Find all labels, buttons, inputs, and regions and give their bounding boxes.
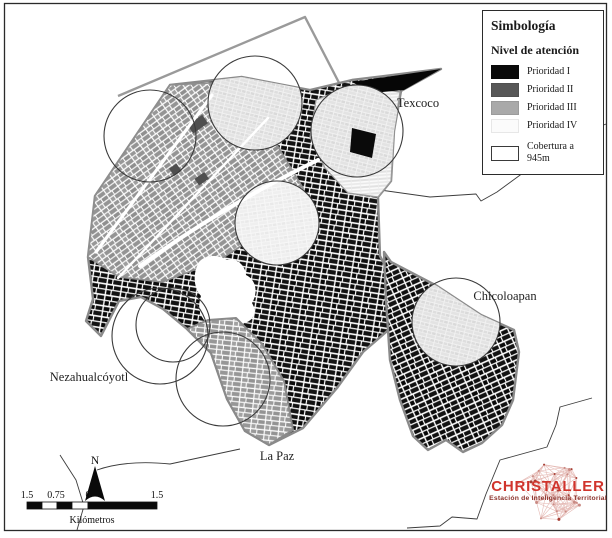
legend-label-coverage: Cobertura a 945m bbox=[527, 141, 595, 165]
logo-tagline: Estación de Inteligencia Territorial bbox=[488, 495, 608, 503]
legend-item-coverage: Cobertura a 945m bbox=[491, 141, 595, 165]
scale-tick: 0 bbox=[86, 490, 91, 501]
legend-swatch-coverage bbox=[491, 146, 519, 161]
legend-swatch-priority1 bbox=[491, 65, 519, 79]
legend-item-priority4: Prioridad IV bbox=[491, 119, 595, 133]
legend-item-priority2: Prioridad II bbox=[491, 83, 595, 97]
scale-tick: 0.75 bbox=[47, 490, 65, 501]
label-chicoloapan: Chicoloapan bbox=[473, 289, 537, 303]
legend-swatch-priority4 bbox=[491, 119, 519, 133]
legend-item-priority1: Prioridad I bbox=[491, 65, 595, 79]
label-texcoco: Texcoco bbox=[397, 96, 439, 110]
legend-title: Simbología bbox=[491, 18, 595, 34]
legend-label-priority4: Prioridad IV bbox=[527, 120, 577, 132]
legend-section-title: Nivel de atención bbox=[491, 43, 595, 58]
logo-text: CHRISTALLER Estación de Inteligencia Ter… bbox=[488, 479, 608, 503]
scale-unit-label: Kilómetros bbox=[70, 515, 115, 526]
label-nezahualcoyotl: Nezahualcóyotl bbox=[50, 370, 129, 384]
legend-label-priority1: Prioridad I bbox=[527, 66, 570, 78]
legend-item-priority3: Prioridad III bbox=[491, 101, 595, 115]
label-la-paz: La Paz bbox=[260, 449, 295, 463]
christaller-logo: CHRISTALLER Estación de Inteligencia Ter… bbox=[488, 453, 608, 531]
map-figure: Texcoco Chicoloapan Nezahualcóyotl La Pa… bbox=[0, 0, 612, 538]
legend-panel: Simbología Nivel de atención Prioridad I… bbox=[482, 10, 604, 175]
scale-tick: 1.5 bbox=[151, 490, 164, 501]
legend-label-priority2: Prioridad II bbox=[527, 84, 573, 96]
scale-tick: 1.5 bbox=[21, 490, 34, 501]
legend-swatch-priority2 bbox=[491, 83, 519, 97]
logo-name: CHRISTALLER bbox=[488, 479, 608, 495]
legend-swatch-priority3 bbox=[491, 101, 519, 115]
legend-label-priority3: Prioridad III bbox=[527, 102, 577, 114]
north-label: N bbox=[91, 455, 100, 467]
